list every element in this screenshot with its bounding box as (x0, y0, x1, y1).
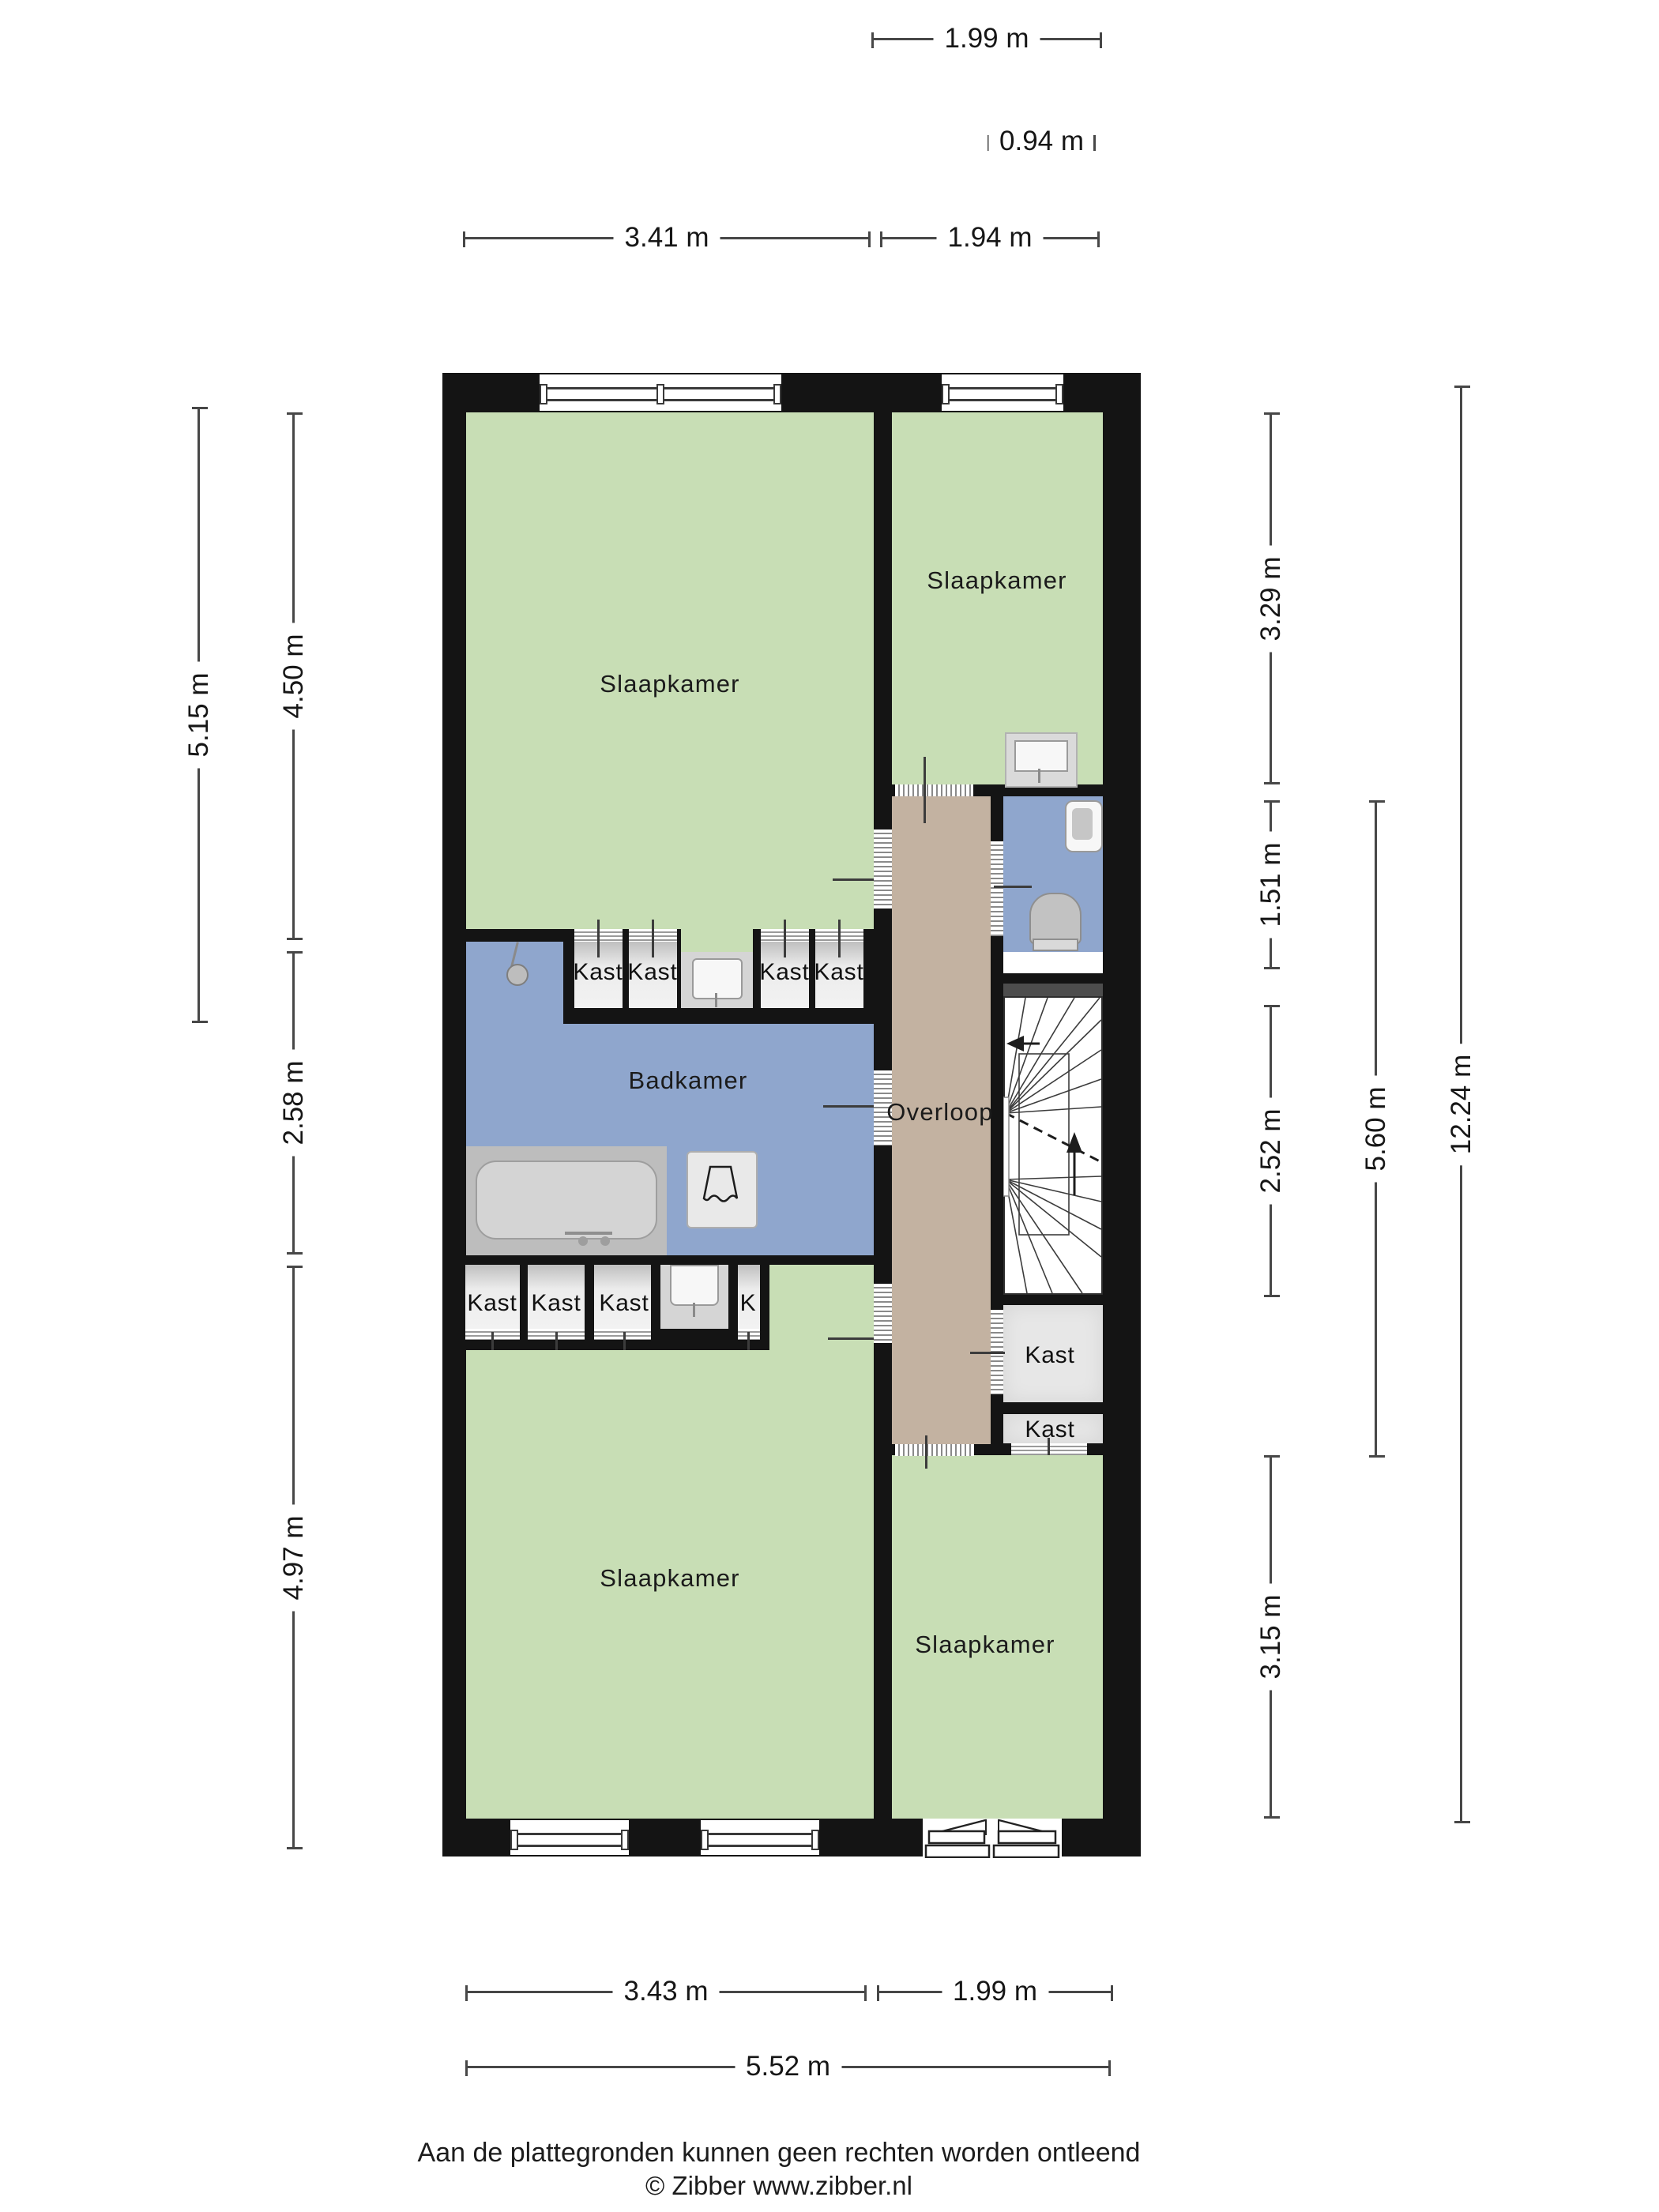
closet-label: Kast (814, 959, 863, 986)
dim-label: 3.43 m (613, 1974, 720, 2009)
closet-label: Kast (627, 959, 677, 986)
door-tick (823, 1105, 874, 1108)
footer-copyright: © Zibber www.zibber.nl (645, 2171, 912, 2201)
stairs (1003, 996, 1103, 1295)
closet-door-tick (838, 920, 841, 957)
bathtub-basin (476, 1161, 657, 1240)
sink-basin (1072, 808, 1093, 840)
window-frame-cap (942, 384, 950, 404)
tap-icon (1038, 769, 1040, 783)
room-label-bedroom-top-left: Slaapkamer (600, 670, 739, 698)
room-label-bathroom: Badkamer (629, 1066, 748, 1095)
closet-label: Kast (573, 959, 623, 986)
door-tick (833, 878, 874, 881)
french-door-leaves (923, 1770, 1062, 1858)
window-glass (704, 1833, 816, 1847)
window-frame-cap (773, 384, 781, 404)
window-frame-cap (811, 1830, 819, 1850)
door-bedroom-top-left (874, 829, 892, 908)
tap-icon (693, 1303, 695, 1317)
dim-label: 5.15 m (182, 662, 216, 769)
window-frame-cap (540, 384, 547, 404)
dim-label: 3.41 m (614, 220, 720, 255)
dim-bottom-199: 1.99 m (877, 1991, 1113, 1993)
bathtub-tap-knob (600, 1236, 610, 1246)
tap-icon (715, 993, 717, 1007)
door-bedroom-top-right (895, 784, 973, 796)
toilet-sink (1065, 800, 1103, 852)
room-label-bedroom-bottom-right: Slaapkamer (915, 1631, 1055, 1659)
dim-left-450: 4.50 m (292, 412, 295, 940)
dim-label: 1.99 m (942, 1974, 1048, 2009)
closet-door-tick (784, 920, 786, 957)
room-label-landing: Overloop (886, 1098, 993, 1127)
cabinet-back-patch (681, 929, 753, 952)
dim-label: 5.52 m (735, 2049, 841, 2084)
bathtub-tap-knob (578, 1236, 588, 1246)
dim-right-252: 2.52 m (1270, 1005, 1272, 1297)
dim-left-515: 5.15 m (197, 407, 200, 1023)
shower-fixture (670, 1265, 719, 1306)
shower-icon (504, 942, 528, 986)
sink-basin (1014, 740, 1068, 772)
toilet-seat (1033, 939, 1078, 951)
footer-disclaimer: Aan de plattegronden kunnen geen rechten… (418, 2138, 1141, 2169)
stair-landing-strip (1003, 984, 1103, 996)
dim-label: 5.60 m (1359, 1076, 1394, 1183)
dim-right-151: 1.51 m (1270, 800, 1272, 969)
floor-plan-page: Slaapkamer Slaapkamer Badkamer Overloop … (0, 0, 1659, 2212)
closet-door-tick (652, 920, 654, 957)
dim-top-194: 1.94 m (880, 237, 1100, 239)
dim-label: 1.51 m (1254, 832, 1288, 939)
dim-label: 0.94 m (988, 124, 1095, 159)
dim-top-094: 0.94 m (987, 141, 1096, 143)
dim-label: 1.94 m (937, 220, 1044, 255)
water-heater (687, 1151, 758, 1228)
dim-bottom-552: 5.52 m (465, 2066, 1111, 2068)
dim-left-258: 2.58 m (292, 951, 295, 1255)
toilet-icon (1029, 893, 1082, 945)
dim-bottom-343: 3.43 m (465, 1991, 867, 1993)
door-tick (925, 1435, 927, 1469)
sink-cabinet (1005, 732, 1078, 788)
closet-label: K (740, 1290, 757, 1317)
closet-label: Kast (1025, 1416, 1074, 1443)
washbasin-cabinet (681, 952, 753, 1008)
room-label-bedroom-top-right: Slaapkamer (927, 566, 1066, 595)
door-toilet (991, 841, 1003, 936)
shower-cabinet (660, 1265, 728, 1329)
dim-label: 12.24 m (1444, 1044, 1479, 1165)
window-glass (945, 387, 1060, 401)
window (701, 1820, 819, 1855)
window-frame-cap (656, 384, 664, 404)
dim-label: 2.58 m (276, 1050, 311, 1157)
dim-right-1224: 12.24 m (1460, 386, 1462, 1823)
dim-label: 4.50 m (276, 623, 311, 730)
room-bedroom-top-right (892, 412, 1103, 784)
door-tick (994, 886, 1032, 888)
shower-tray-icon (688, 1153, 753, 1224)
bathtub-tap (565, 1232, 612, 1235)
dim-label: 3.29 m (1254, 545, 1288, 652)
dim-right-560: 5.60 m (1375, 800, 1377, 1458)
toilet-floor-strip (1003, 952, 1103, 973)
dim-label: 2.52 m (1254, 1098, 1288, 1205)
door-bedroom-bottom-right (895, 1444, 974, 1456)
room-label-bedroom-bottom-left: Slaapkamer (600, 1564, 739, 1593)
door-tick (828, 1337, 874, 1340)
window (942, 374, 1063, 411)
window (510, 1820, 629, 1855)
dim-label: 3.15 m (1254, 1584, 1288, 1691)
dim-right-329: 3.29 m (1270, 412, 1272, 784)
dim-top-341: 3.41 m (463, 237, 871, 239)
window-frame-cap (1055, 384, 1063, 404)
washbasin (692, 958, 743, 999)
dim-top-199: 1.99 m (871, 38, 1102, 40)
closet-label: Kast (1025, 1342, 1074, 1369)
closet-label: Kast (467, 1290, 517, 1317)
window-frame-cap (510, 1830, 518, 1850)
closet-label: Kast (759, 959, 809, 986)
closet-door-tick (597, 920, 600, 957)
dim-label: 4.97 m (276, 1504, 311, 1611)
window-glass (513, 1833, 626, 1847)
window-frame-cap (621, 1830, 629, 1850)
door-tick (970, 1352, 1005, 1354)
closet-label: Kast (531, 1290, 581, 1317)
dim-right-315: 3.15 m (1270, 1455, 1272, 1819)
closet-label: Kast (599, 1290, 649, 1317)
door-tick (924, 757, 926, 823)
window-frame-cap (701, 1830, 709, 1850)
dim-left-497: 4.97 m (292, 1266, 295, 1849)
dim-label: 1.99 m (934, 21, 1040, 56)
bathtub (466, 1146, 667, 1255)
window (540, 374, 781, 411)
door-bedroom-bottom-left (874, 1284, 892, 1343)
closet-sill (594, 1329, 651, 1340)
